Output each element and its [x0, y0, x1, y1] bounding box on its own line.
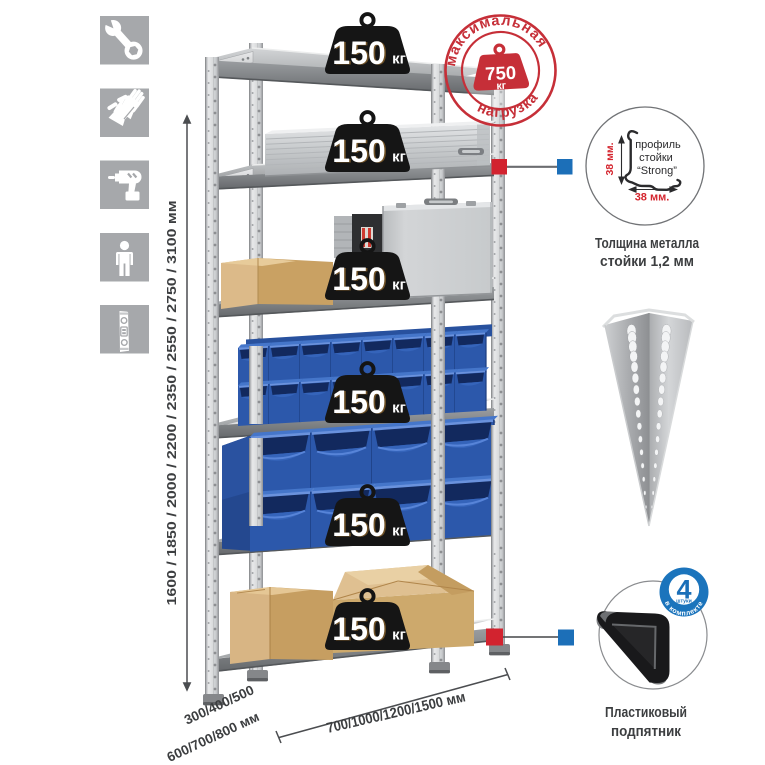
svg-text:150: 150 [332, 261, 385, 297]
svg-text:кг: кг [392, 51, 406, 68]
svg-text:38 мм.: 38 мм. [604, 142, 616, 175]
svg-text:Толщина металла: Толщина металла [595, 235, 700, 252]
svg-text:кг: кг [496, 80, 507, 93]
svg-text:150: 150 [332, 35, 385, 71]
svg-text:150: 150 [332, 507, 385, 543]
svg-text:профиль: профиль [635, 139, 681, 151]
svg-text:150: 150 [332, 611, 385, 647]
svg-text:стойки: стойки [639, 152, 673, 164]
svg-text:700/1000/1200/1500 мм: 700/1000/1200/1500 мм [325, 689, 467, 737]
svg-text:“Strong”: “Strong” [637, 165, 677, 177]
svg-text:кг: кг [392, 277, 406, 294]
svg-text:150: 150 [332, 384, 385, 420]
svg-text:кг: кг [392, 627, 406, 644]
svg-text:150: 150 [332, 133, 385, 169]
svg-text:1600 / 1850 / 2000 / 2200 / 23: 1600 / 1850 / 2000 / 2200 / 2350 / 2550 … [165, 200, 179, 605]
svg-text:подпятник: подпятник [611, 723, 681, 740]
svg-text:600/700/800 мм: 600/700/800 мм [165, 709, 262, 765]
svg-text:кг: кг [392, 523, 406, 540]
svg-text:38 мм.: 38 мм. [635, 192, 670, 204]
svg-text:стойки 1,2 мм: стойки 1,2 мм [600, 253, 694, 270]
svg-text:кг: кг [392, 149, 406, 166]
svg-text:кг: кг [392, 400, 406, 417]
svg-text:Пластиковый: Пластиковый [605, 704, 687, 721]
svg-text:штуки: штуки [676, 599, 692, 605]
